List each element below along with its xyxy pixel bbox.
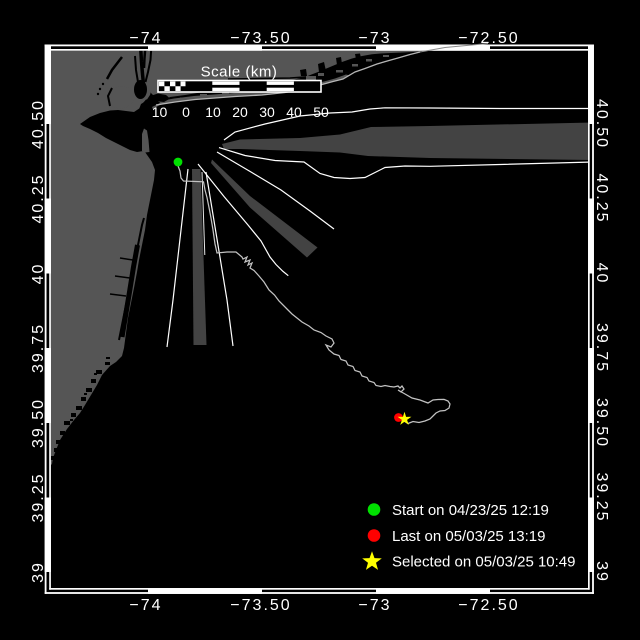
svg-text:20: 20 (232, 104, 248, 120)
svg-text:39: 39 (30, 561, 47, 583)
svg-text:−74: −74 (129, 597, 162, 614)
svg-text:40.25: 40.25 (593, 173, 610, 223)
svg-text:39.50: 39.50 (593, 398, 610, 448)
svg-text:Start on 04/23/25 12:19: Start on 04/23/25 12:19 (392, 502, 549, 519)
svg-text:39.75: 39.75 (593, 323, 610, 373)
svg-text:39.50: 39.50 (30, 398, 47, 448)
svg-text:30: 30 (259, 104, 275, 120)
svg-text:−72.50: −72.50 (458, 30, 519, 47)
svg-text:50: 50 (313, 104, 329, 120)
svg-text:39: 39 (593, 561, 610, 583)
svg-text:39.25: 39.25 (30, 472, 47, 522)
svg-text:0: 0 (182, 104, 190, 120)
svg-text:40.50: 40.50 (593, 99, 610, 149)
svg-text:Scale (km): Scale (km) (201, 64, 278, 81)
svg-text:−73.50: −73.50 (230, 30, 291, 47)
svg-text:40: 40 (286, 104, 302, 120)
svg-text:−73.50: −73.50 (230, 597, 291, 614)
svg-text:39.25: 39.25 (593, 472, 610, 522)
svg-text:40: 40 (593, 263, 610, 285)
svg-text:Selected on 05/03/25 10:49: Selected on 05/03/25 10:49 (392, 554, 576, 571)
svg-text:40: 40 (30, 263, 47, 285)
svg-text:10: 10 (205, 104, 221, 120)
svg-text:Last on 05/03/25 13:19: Last on 05/03/25 13:19 (392, 528, 545, 545)
svg-text:−72.50: −72.50 (458, 597, 519, 614)
svg-text:−74: −74 (129, 30, 162, 47)
svg-text:40.25: 40.25 (30, 173, 47, 223)
svg-text:10: 10 (152, 104, 168, 120)
svg-text:−73: −73 (358, 30, 391, 47)
svg-text:39.75: 39.75 (30, 323, 47, 373)
svg-text:40.50: 40.50 (30, 99, 47, 149)
svg-text:−73: −73 (358, 597, 391, 614)
